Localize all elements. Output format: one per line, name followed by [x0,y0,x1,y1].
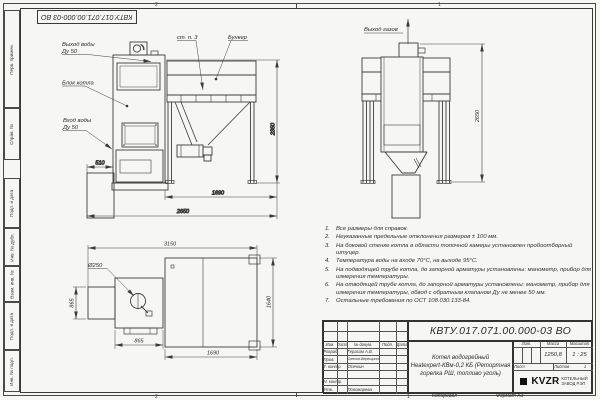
sign-row-label: Утв. [324,386,347,393]
kvzr-logo-icon [518,376,529,387]
label-water-in-line2: Ду 50 [62,125,79,131]
sheets-value: 1 [579,363,591,369]
dim-1640: 1640 [267,295,273,308]
product-name: Котел водогрейный Heatexpert-КВм-0,2 КБ … [408,341,513,394]
dim-1690-top: 1690 [207,351,220,357]
label-boiler-block: Блок котла [62,81,95,87]
side-view: 2650 Выход газов [361,19,485,218]
note-item: 3.На боковой стенке котла в области топо… [325,243,595,257]
sign-row-name: Герасим А.В. [348,348,379,355]
dim-2350: 2350 [271,122,277,136]
dim-2650-side: 2650 [475,109,481,123]
company-logo: KVZR КОТЕЛЬНЫЙ ЗАВОД РЭП [513,370,593,394]
sheet-label: Лист [514,363,532,369]
sign-row-name: Олесов-Верещинский [348,356,379,363]
label-water-out-line1: Выход воды [62,42,95,48]
note-item: 7.Остальные требования по ОСТ 108.030.13… [325,298,595,305]
sign-row-label: Т. контр. [324,363,347,370]
dim-510: 510 [95,161,105,167]
note-item: 1.Все размеры для справок. [325,226,595,233]
note-item: 2.Неуказанные предельные отклонения разм… [325,234,595,241]
note-item: 5.На подводящей трубе котла, до запорной… [325,267,595,281]
note-item: 6.На отводящей трубе котла, до запорной … [325,282,595,296]
dim-3150: 3150 [164,242,177,248]
dim-865-vertical: 865 [70,297,76,307]
sign-row-name: Осечкин [348,363,379,370]
label-water-in-line1: Вход воды [63,118,92,124]
title-block: Изм. Лист № докум. Подп. Дата Разраб. Ге… [322,320,592,393]
label-bunker: Бункер [228,35,248,41]
sign-row-label: Пров. [324,356,347,363]
org-name: КОТЕЛЬНЫЙ ЗАВОД РЭП [561,377,587,387]
label-wall-ref: ст. п. 3 [177,35,198,41]
top-view: 3150 865 865 1690 1640 Ø250 [70,242,278,361]
mass-value: 1250,8 [540,348,566,362]
title-doc-number: КВТУ.017.071.00.000-03 ВО [408,321,593,341]
drawing-sheet: 2 1 2 1 Копировал Формат А3 Перв. примен… [0,0,600,400]
scale-value: 1 : 25 [566,348,593,362]
dim-1690-front: 1690 [212,191,225,197]
note-item: 4.Температура воды на входе 70°С, на вых… [325,258,595,265]
label-dia-250: Ø250 [87,263,103,269]
sheets-label: Листов [554,363,576,369]
sign-row-name: Пономарева [348,386,379,393]
label-gas-out: Выход газов [364,27,398,33]
dim-2650-front: 2650 [176,209,190,215]
sign-row-label: Разраб. [324,348,347,355]
notes-list: 1.Все размеры для справок. 2.Неуказанные… [325,226,595,306]
front-view: 510 2350 1690 2650 Выход во [61,35,280,219]
dim-865-horizontal: 865 [134,339,144,345]
logo-text: KVZR [531,376,559,387]
label-water-out-line2: Ду 50 [61,49,78,55]
sign-row-label: Н. контр. [324,378,347,385]
